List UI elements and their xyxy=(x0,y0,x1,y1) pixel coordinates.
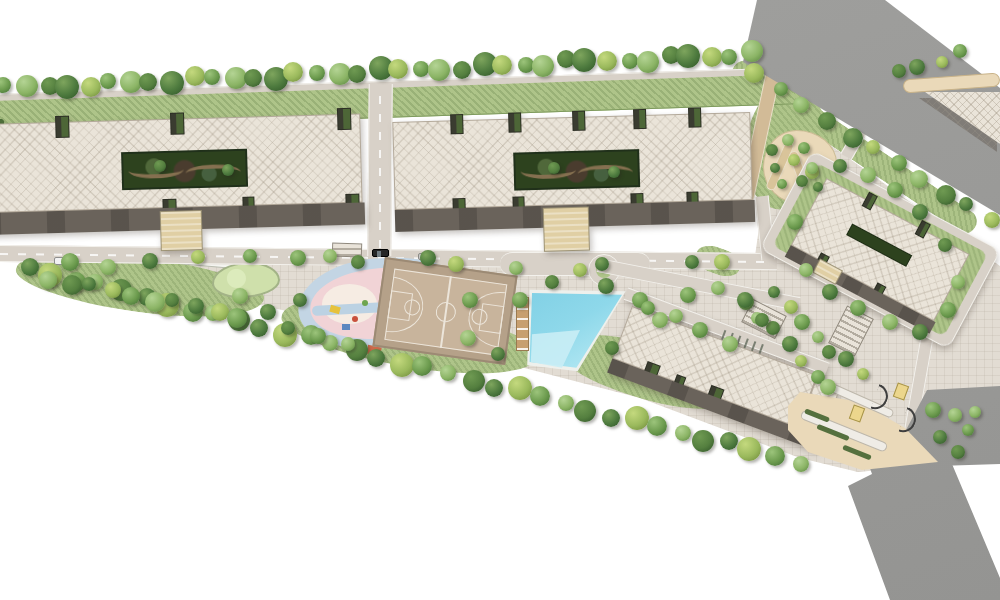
tree-icon xyxy=(211,303,229,321)
tree-icon xyxy=(741,40,763,62)
tree-icon xyxy=(160,71,184,95)
tree-icon xyxy=(532,55,554,77)
tree-icon xyxy=(680,287,696,303)
tree-icon xyxy=(0,77,11,93)
tree-icon xyxy=(887,182,903,198)
tree-icon xyxy=(185,66,205,86)
tree-icon xyxy=(428,59,450,81)
tree-icon xyxy=(281,321,295,335)
tree-icon xyxy=(598,278,614,294)
tree-icon xyxy=(774,82,788,96)
tree-layer xyxy=(0,0,1000,600)
tree-icon xyxy=(822,345,836,359)
tree-icon xyxy=(165,293,179,307)
tree-icon xyxy=(351,255,365,269)
tree-icon xyxy=(820,379,836,395)
tree-icon xyxy=(647,416,667,436)
tree-icon xyxy=(244,69,262,87)
tree-icon xyxy=(55,75,79,99)
tree-icon xyxy=(692,430,714,452)
tree-icon xyxy=(788,154,800,166)
tree-icon xyxy=(413,61,429,77)
tree-icon xyxy=(388,59,408,79)
tree-icon xyxy=(509,261,523,275)
tree-icon xyxy=(806,162,818,174)
tree-icon xyxy=(485,379,503,397)
tree-icon xyxy=(882,314,898,330)
tree-icon xyxy=(463,370,485,392)
tree-icon xyxy=(420,250,436,266)
tree-icon xyxy=(625,406,649,430)
tree-icon xyxy=(310,328,326,344)
tree-icon xyxy=(669,309,683,323)
tree-icon xyxy=(787,214,803,230)
tree-icon xyxy=(558,395,574,411)
tree-icon xyxy=(145,292,165,312)
tree-icon xyxy=(545,275,559,289)
tree-icon xyxy=(367,349,385,367)
tree-icon xyxy=(796,175,808,187)
tree-icon xyxy=(891,155,907,171)
tree-icon xyxy=(755,313,769,327)
tree-icon xyxy=(574,400,596,422)
tree-icon xyxy=(793,97,809,113)
tree-icon xyxy=(866,140,880,154)
tree-icon xyxy=(62,275,82,295)
tree-icon xyxy=(602,409,620,427)
tree-icon xyxy=(822,284,838,300)
site-plan xyxy=(0,0,1000,600)
tree-icon xyxy=(860,167,876,183)
tree-icon xyxy=(154,160,166,172)
tree-icon xyxy=(912,204,928,220)
tree-icon xyxy=(795,355,807,367)
tree-icon xyxy=(283,62,303,82)
tree-icon xyxy=(597,51,617,71)
tree-icon xyxy=(204,69,220,85)
tree-icon xyxy=(711,281,725,295)
tree-icon xyxy=(222,164,234,176)
tree-icon xyxy=(702,47,722,67)
tree-icon xyxy=(100,73,116,89)
tree-icon xyxy=(142,253,158,269)
tree-icon xyxy=(652,312,668,328)
tree-icon xyxy=(938,238,952,252)
tree-icon xyxy=(692,322,708,338)
tree-icon xyxy=(833,159,847,173)
tree-icon xyxy=(440,365,456,381)
tree-icon xyxy=(721,49,737,65)
tree-icon xyxy=(462,292,478,308)
tree-icon xyxy=(188,298,204,314)
tree-icon xyxy=(548,162,560,174)
tree-icon xyxy=(793,456,809,472)
tree-icon xyxy=(909,59,925,75)
tree-icon xyxy=(765,446,785,466)
tree-icon xyxy=(512,292,528,308)
tree-icon xyxy=(850,300,866,316)
tree-icon xyxy=(572,48,596,72)
tree-icon xyxy=(227,308,247,328)
tree-icon xyxy=(857,368,869,380)
tree-icon xyxy=(641,301,655,315)
tree-icon xyxy=(348,65,366,83)
tree-icon xyxy=(777,179,787,189)
tree-icon xyxy=(675,425,691,441)
tree-icon xyxy=(962,424,974,436)
tree-icon xyxy=(530,386,550,406)
tree-icon xyxy=(933,430,947,444)
tree-icon xyxy=(737,437,761,461)
tree-icon xyxy=(782,134,794,146)
tree-icon xyxy=(122,287,140,305)
tree-icon xyxy=(390,353,414,377)
tree-icon xyxy=(323,249,337,263)
tree-icon xyxy=(293,293,307,307)
tree-icon xyxy=(744,63,764,83)
tree-icon xyxy=(21,258,39,276)
tree-icon xyxy=(608,166,620,178)
tree-icon xyxy=(770,163,780,173)
tree-icon xyxy=(637,51,659,73)
tree-icon xyxy=(243,249,257,263)
tree-icon xyxy=(605,341,619,355)
tree-icon xyxy=(969,406,981,418)
tree-icon xyxy=(948,408,962,422)
tree-icon xyxy=(622,53,638,69)
tree-icon xyxy=(951,275,965,289)
tree-icon xyxy=(936,185,956,205)
tree-icon xyxy=(910,170,928,188)
tree-icon xyxy=(722,336,738,352)
tree-icon xyxy=(100,259,116,275)
tree-icon xyxy=(951,445,965,459)
tree-icon xyxy=(191,250,205,264)
tree-icon xyxy=(799,263,813,277)
tree-icon xyxy=(491,347,505,361)
tree-icon xyxy=(290,250,306,266)
tree-icon xyxy=(798,142,810,154)
tree-icon xyxy=(232,288,248,304)
tree-icon xyxy=(492,55,512,75)
tree-icon xyxy=(794,314,810,330)
tree-icon xyxy=(768,286,780,298)
tree-icon xyxy=(139,73,157,91)
tree-icon xyxy=(843,128,863,148)
tree-icon xyxy=(714,254,730,270)
tree-icon xyxy=(940,302,956,318)
tree-icon xyxy=(460,330,476,346)
tree-icon xyxy=(412,356,432,376)
tree-icon xyxy=(959,197,973,211)
tree-icon xyxy=(595,257,609,271)
tree-icon xyxy=(448,256,464,272)
tree-icon xyxy=(508,376,532,400)
tree-icon xyxy=(81,77,101,97)
tree-icon xyxy=(676,44,700,68)
tree-icon xyxy=(453,61,471,79)
tree-icon xyxy=(818,112,836,130)
tree-icon xyxy=(984,212,1000,228)
tree-icon xyxy=(813,182,823,192)
tree-icon xyxy=(720,432,738,450)
tree-icon xyxy=(341,337,355,351)
tree-icon xyxy=(61,253,79,271)
tree-icon xyxy=(892,64,906,78)
tree-icon xyxy=(782,336,798,352)
tree-icon xyxy=(838,351,854,367)
tree-icon xyxy=(573,263,587,277)
tree-icon xyxy=(953,44,967,58)
tree-icon xyxy=(784,300,798,314)
tree-icon xyxy=(936,56,948,68)
tree-icon xyxy=(260,304,276,320)
tree-icon xyxy=(39,271,57,289)
tree-icon xyxy=(250,319,268,337)
tree-icon xyxy=(737,292,753,308)
tree-icon xyxy=(766,144,778,156)
tree-icon xyxy=(925,402,941,418)
tree-icon xyxy=(309,65,325,81)
tree-icon xyxy=(912,324,928,340)
tree-icon xyxy=(812,331,824,343)
tree-icon xyxy=(16,75,38,97)
tree-icon xyxy=(105,282,121,298)
tree-icon xyxy=(685,255,699,269)
